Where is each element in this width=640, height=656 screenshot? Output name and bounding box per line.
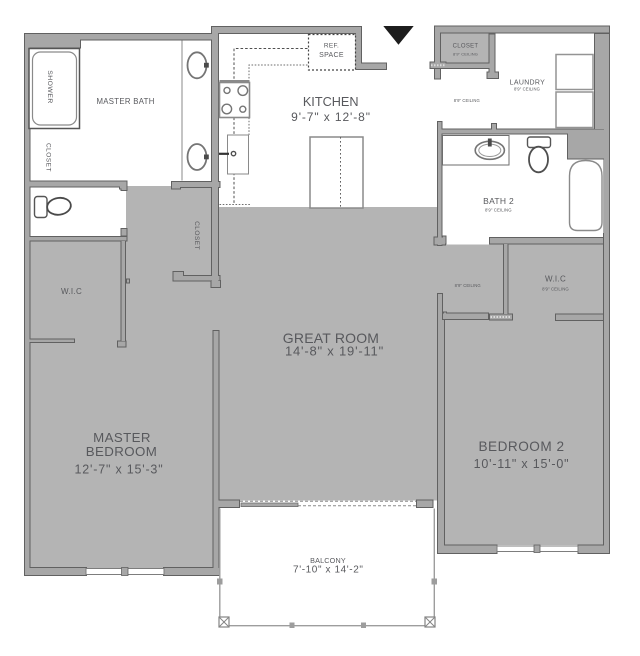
svg-text:8'9" CEILING: 8'9" CEILING <box>485 207 512 212</box>
svg-text:BEDROOM: BEDROOM <box>86 444 158 459</box>
svg-text:8'9" CEILING: 8'9" CEILING <box>455 283 481 288</box>
svg-text:BATH 2: BATH 2 <box>483 196 514 206</box>
svg-text:SHOWER: SHOWER <box>46 70 53 104</box>
svg-text:8'9" CEILING: 8'9" CEILING <box>453 52 478 57</box>
svg-text:MASTER: MASTER <box>93 430 151 445</box>
svg-text:MASTER BATH: MASTER BATH <box>97 97 155 106</box>
svg-text:7'-10" x 14'-2": 7'-10" x 14'-2" <box>293 564 364 575</box>
svg-text:14'-8" x 19'-11": 14'-8" x 19'-11" <box>285 344 384 359</box>
svg-text:8'9" CEILING: 8'9" CEILING <box>514 87 540 92</box>
svg-text:LAUNDRY: LAUNDRY <box>510 80 545 87</box>
svg-text:BEDROOM 2: BEDROOM 2 <box>478 439 564 454</box>
svg-text:W.I.C: W.I.C <box>545 275 566 284</box>
svg-text:8'9" CEILING: 8'9" CEILING <box>454 98 480 103</box>
svg-text:9'-7" x 12'-8": 9'-7" x 12'-8" <box>291 110 371 124</box>
svg-text:8'9" CEILING: 8'9" CEILING <box>542 287 569 292</box>
svg-text:REF.: REF. <box>324 43 339 50</box>
svg-text:KITCHEN: KITCHEN <box>303 95 359 109</box>
svg-text:12'-7" x 15'-3": 12'-7" x 15'-3" <box>75 463 164 477</box>
svg-text:W.I.C: W.I.C <box>61 287 82 296</box>
svg-text:CLOSET: CLOSET <box>453 44 479 50</box>
svg-text:10'-11" x 15'-0": 10'-11" x 15'-0" <box>474 457 570 471</box>
svg-text:SPACE: SPACE <box>319 52 344 59</box>
svg-text:CLOSET: CLOSET <box>45 143 52 172</box>
svg-text:CLOSET: CLOSET <box>193 221 200 250</box>
